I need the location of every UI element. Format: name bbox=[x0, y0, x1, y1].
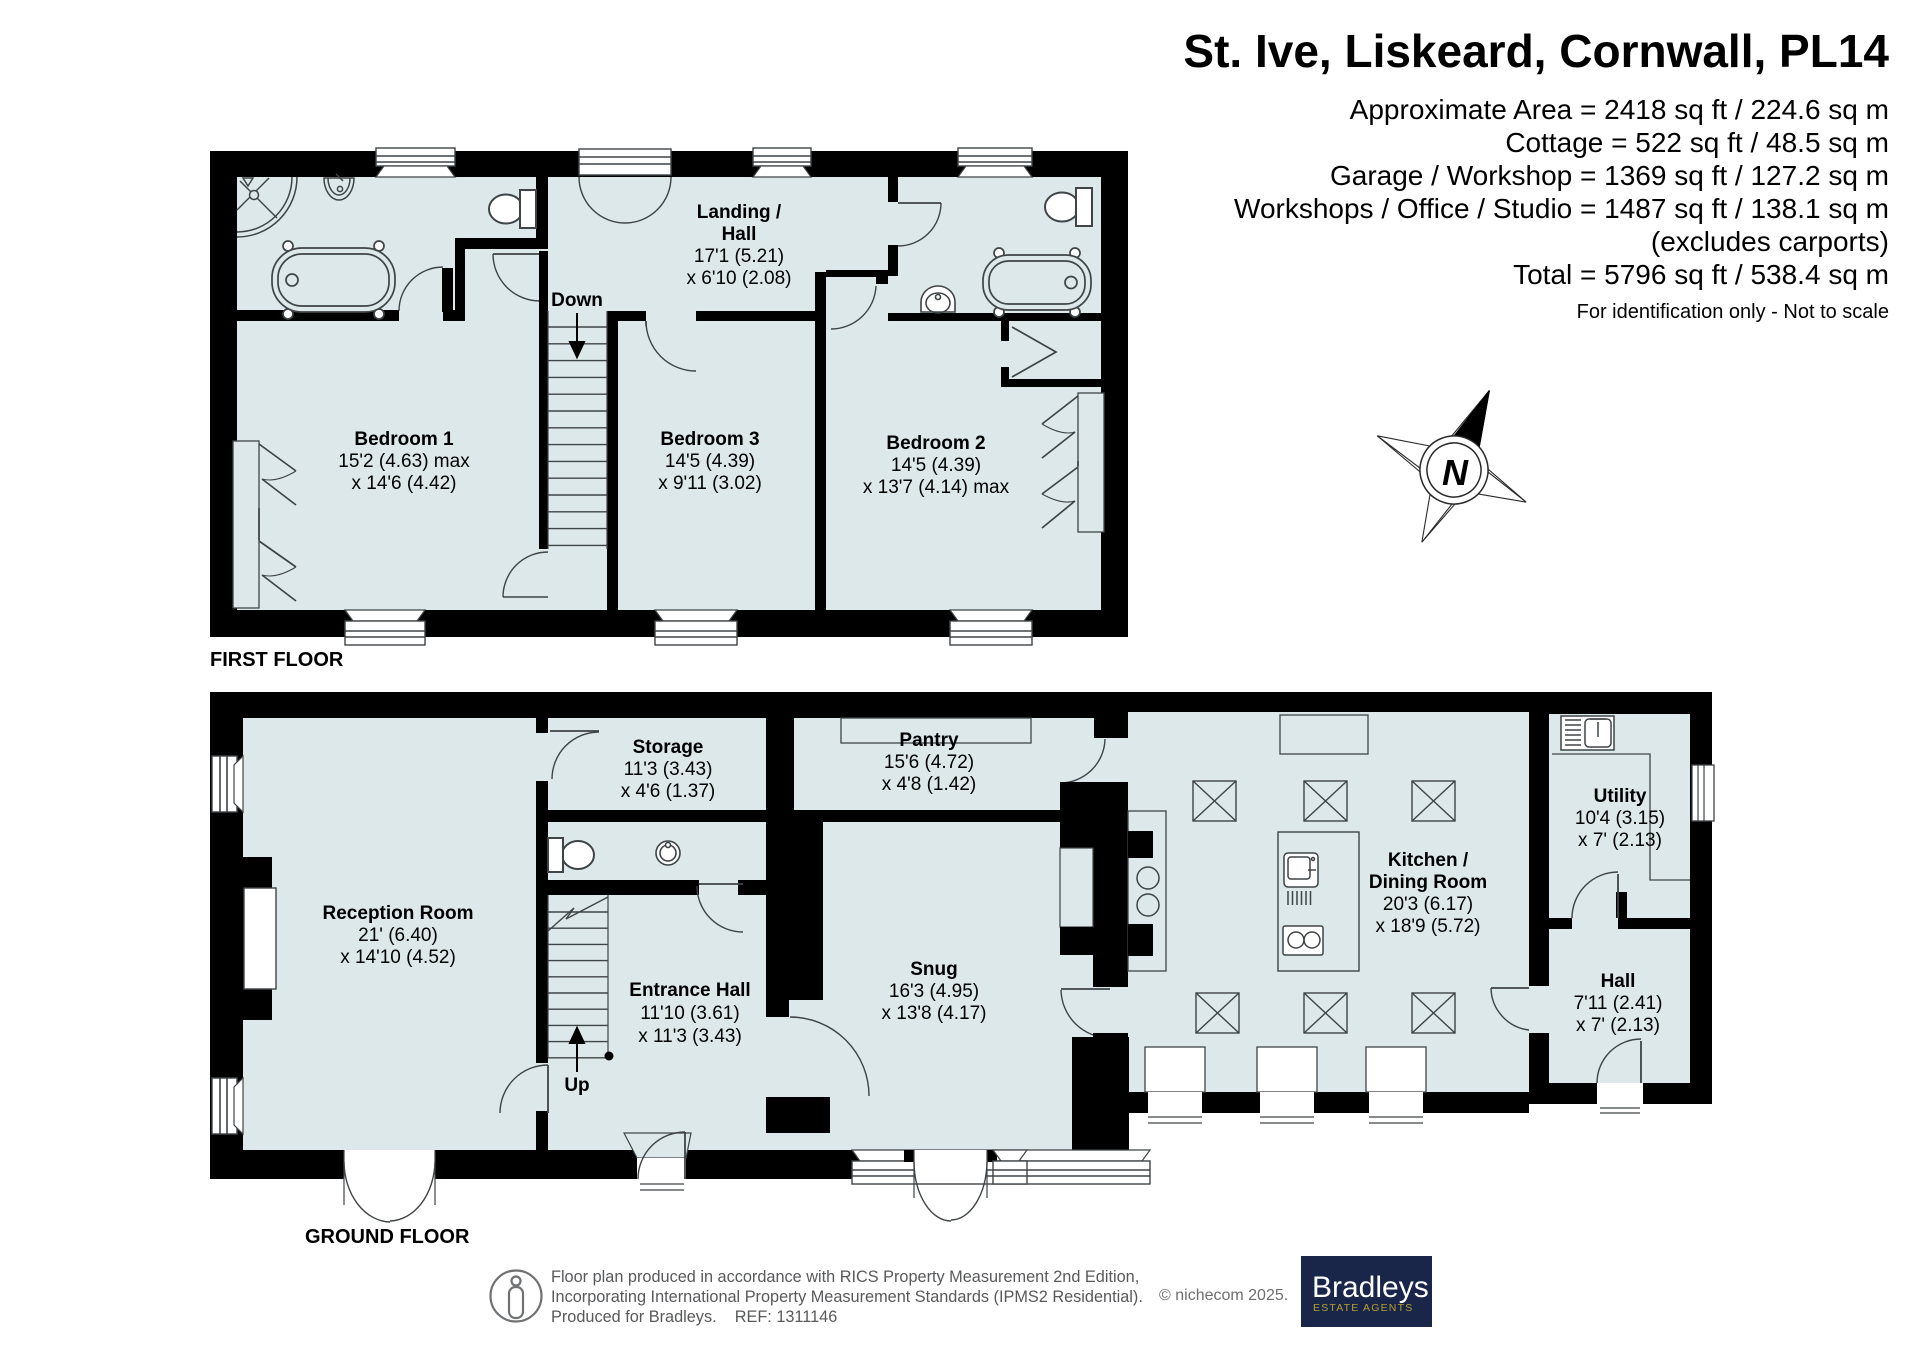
svg-text:Floor plan produced in accorda: Floor plan produced in accordance with R… bbox=[551, 1268, 1139, 1286]
svg-text:x 11'3 (3.43): x 11'3 (3.43) bbox=[638, 1026, 742, 1047]
svg-text:© nichecom 2025.: © nichecom 2025. bbox=[1159, 1287, 1288, 1304]
svg-text:Bedroom 2: Bedroom 2 bbox=[886, 433, 985, 454]
svg-text:Total = 5796 sq ft / 538.4 sq: Total = 5796 sq ft / 538.4 sq m bbox=[1513, 259, 1889, 290]
svg-text:Workshops / Office / Studio =: Workshops / Office / Studio = 1487 sq ft… bbox=[1234, 193, 1889, 224]
svg-text:10'4 (3.15): 10'4 (3.15) bbox=[1575, 808, 1665, 829]
svg-text:St. Ive, Liskeard, Cornwall, P: St. Ive, Liskeard, Cornwall, PL14 bbox=[1183, 25, 1889, 77]
svg-text:Dining Room: Dining Room bbox=[1369, 872, 1487, 893]
svg-text:Bedroom 3: Bedroom 3 bbox=[660, 429, 759, 450]
svg-text:Utility: Utility bbox=[1594, 786, 1647, 807]
svg-text:x 13'8 (4.17): x 13'8 (4.17) bbox=[881, 1003, 986, 1024]
svg-text:11'3 (3.43): 11'3 (3.43) bbox=[624, 759, 713, 780]
svg-text:21' (6.40): 21' (6.40) bbox=[358, 925, 438, 946]
svg-text:(excludes carports): (excludes carports) bbox=[1651, 226, 1889, 257]
svg-text:x 9'11 (3.02): x 9'11 (3.02) bbox=[658, 473, 762, 494]
svg-text:16'3 (4.95): 16'3 (4.95) bbox=[889, 981, 979, 1002]
svg-text:14'5 (4.39): 14'5 (4.39) bbox=[665, 451, 755, 472]
svg-text:Reception Room: Reception Room bbox=[323, 903, 474, 924]
svg-text:x 18'9 (5.72): x 18'9 (5.72) bbox=[1375, 916, 1480, 937]
svg-text:Up: Up bbox=[564, 1075, 589, 1096]
svg-text:Pantry: Pantry bbox=[899, 730, 959, 751]
svg-text:Storage: Storage bbox=[633, 737, 704, 758]
svg-text:N: N bbox=[1442, 452, 1469, 493]
svg-text:x 7' (2.13): x 7' (2.13) bbox=[1576, 1015, 1660, 1036]
svg-text:15'6 (4.72): 15'6 (4.72) bbox=[884, 752, 974, 773]
svg-text:11'10 (3.61): 11'10 (3.61) bbox=[640, 1003, 739, 1024]
svg-text:x 14'6 (4.42): x 14'6 (4.42) bbox=[351, 473, 456, 494]
svg-text:Landing /: Landing / bbox=[697, 202, 782, 223]
svg-text:17'1 (5.21): 17'1 (5.21) bbox=[694, 246, 784, 267]
svg-text:x 4'8 (1.42): x 4'8 (1.42) bbox=[882, 774, 976, 795]
svg-text:Kitchen /: Kitchen / bbox=[1388, 850, 1469, 871]
svg-text:Hall: Hall bbox=[1601, 971, 1636, 992]
svg-text:ESTATE AGENTS: ESTATE AGENTS bbox=[1313, 1302, 1413, 1314]
svg-text:Bradleys: Bradleys bbox=[1312, 1271, 1429, 1304]
svg-text:Garage / Workshop = 1369 sq ft: Garage / Workshop = 1369 sq ft / 127.2 s… bbox=[1330, 160, 1889, 191]
svg-text:For identification only - Not: For identification only - Not to scale bbox=[1577, 301, 1889, 323]
svg-text:Approximate Area = 2418 sq ft: Approximate Area = 2418 sq ft / 224.6 sq… bbox=[1350, 94, 1889, 125]
svg-text:x 13'7 (4.14) max: x 13'7 (4.14) max bbox=[863, 477, 1010, 498]
svg-text:x 14'10 (4.52): x 14'10 (4.52) bbox=[340, 947, 456, 968]
svg-text:Incorporating International Pr: Incorporating International Property Mea… bbox=[551, 1288, 1143, 1306]
svg-text:Produced for Bradleys. REF:: Produced for Bradleys. REF: 1311146 bbox=[551, 1308, 837, 1326]
svg-text:x 7' (2.13): x 7' (2.13) bbox=[1578, 830, 1662, 851]
svg-text:Cottage = 522 sq ft / 48.5 sq: Cottage = 522 sq ft / 48.5 sq m bbox=[1505, 127, 1889, 158]
svg-text:14'5 (4.39): 14'5 (4.39) bbox=[891, 455, 981, 476]
svg-text:FIRST FLOOR: FIRST FLOOR bbox=[210, 649, 344, 671]
svg-text:Snug: Snug bbox=[910, 959, 958, 980]
svg-text:Down: Down bbox=[551, 290, 603, 311]
svg-text:Bedroom 1: Bedroom 1 bbox=[354, 429, 454, 450]
svg-text:15'2 (4.63) max: 15'2 (4.63) max bbox=[338, 451, 470, 472]
svg-text:x 6'10 (2.08): x 6'10 (2.08) bbox=[686, 268, 791, 289]
svg-text:Entrance Hall: Entrance Hall bbox=[629, 980, 750, 1001]
svg-text:Hall: Hall bbox=[722, 224, 757, 245]
svg-text:20'3 (6.17): 20'3 (6.17) bbox=[1383, 894, 1473, 915]
svg-text:x 4'6 (1.37): x 4'6 (1.37) bbox=[621, 781, 715, 802]
svg-text:7'11 (2.41): 7'11 (2.41) bbox=[1574, 993, 1663, 1014]
svg-text:GROUND FLOOR: GROUND FLOOR bbox=[305, 1226, 470, 1248]
